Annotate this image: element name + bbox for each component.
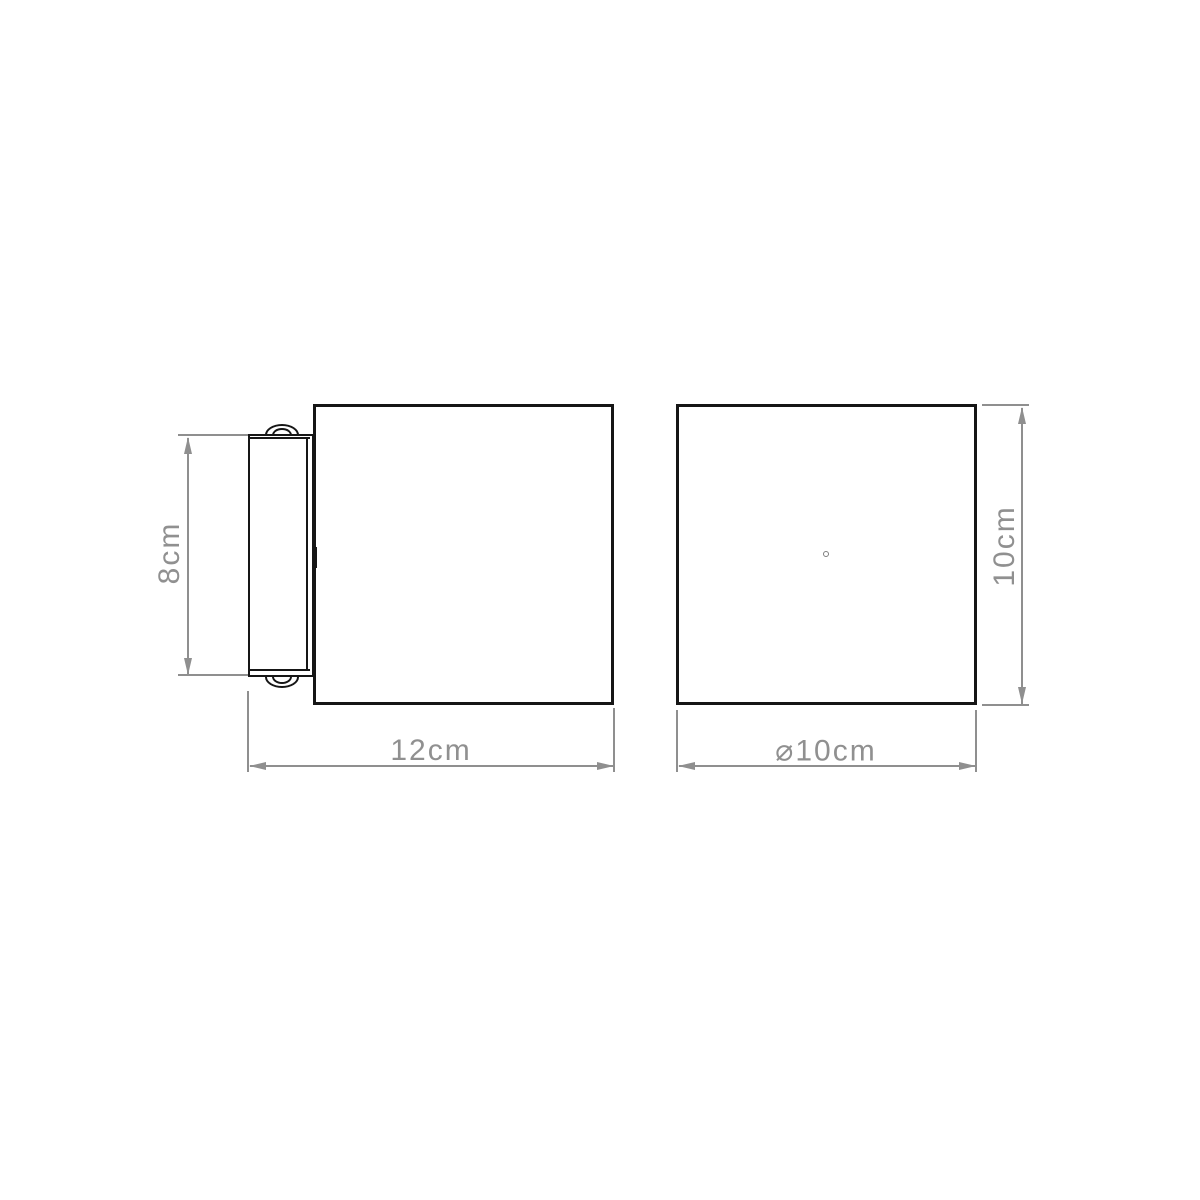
bracket-inner-top-line	[250, 437, 310, 439]
extension-line	[982, 704, 1029, 706]
technical-drawing-canvas: 8cm 12cm 10cm	[0, 0, 1200, 1200]
arrowhead-right-icon	[959, 762, 976, 770]
center-hole-mark	[823, 551, 829, 557]
extension-line	[178, 434, 248, 436]
wall-bracket-plate	[248, 434, 314, 677]
dimension-line	[187, 438, 189, 674]
arrowhead-down-icon	[1018, 687, 1026, 704]
arrowhead-left-icon	[249, 762, 266, 770]
arrowhead-right-icon	[597, 762, 614, 770]
arrowhead-up-icon	[184, 437, 192, 454]
side-view-joint-notch	[313, 547, 317, 568]
dimension-label-10cm-height: 10cm	[988, 505, 1022, 586]
dimension-label-diameter-10cm: ⌀10cm	[775, 734, 876, 769]
dimension-label-8cm: 8cm	[153, 522, 187, 585]
extension-line	[982, 404, 1029, 406]
arrowhead-down-icon	[184, 658, 192, 675]
arrowhead-left-icon	[678, 762, 695, 770]
arrowhead-up-icon	[1018, 407, 1026, 424]
bracket-inner-right-line	[306, 437, 308, 671]
extension-line	[247, 691, 249, 772]
bracket-inner-bottom-line	[250, 669, 310, 671]
dimension-label-12cm: 12cm	[390, 734, 471, 768]
side-view-body-outline	[313, 404, 614, 705]
